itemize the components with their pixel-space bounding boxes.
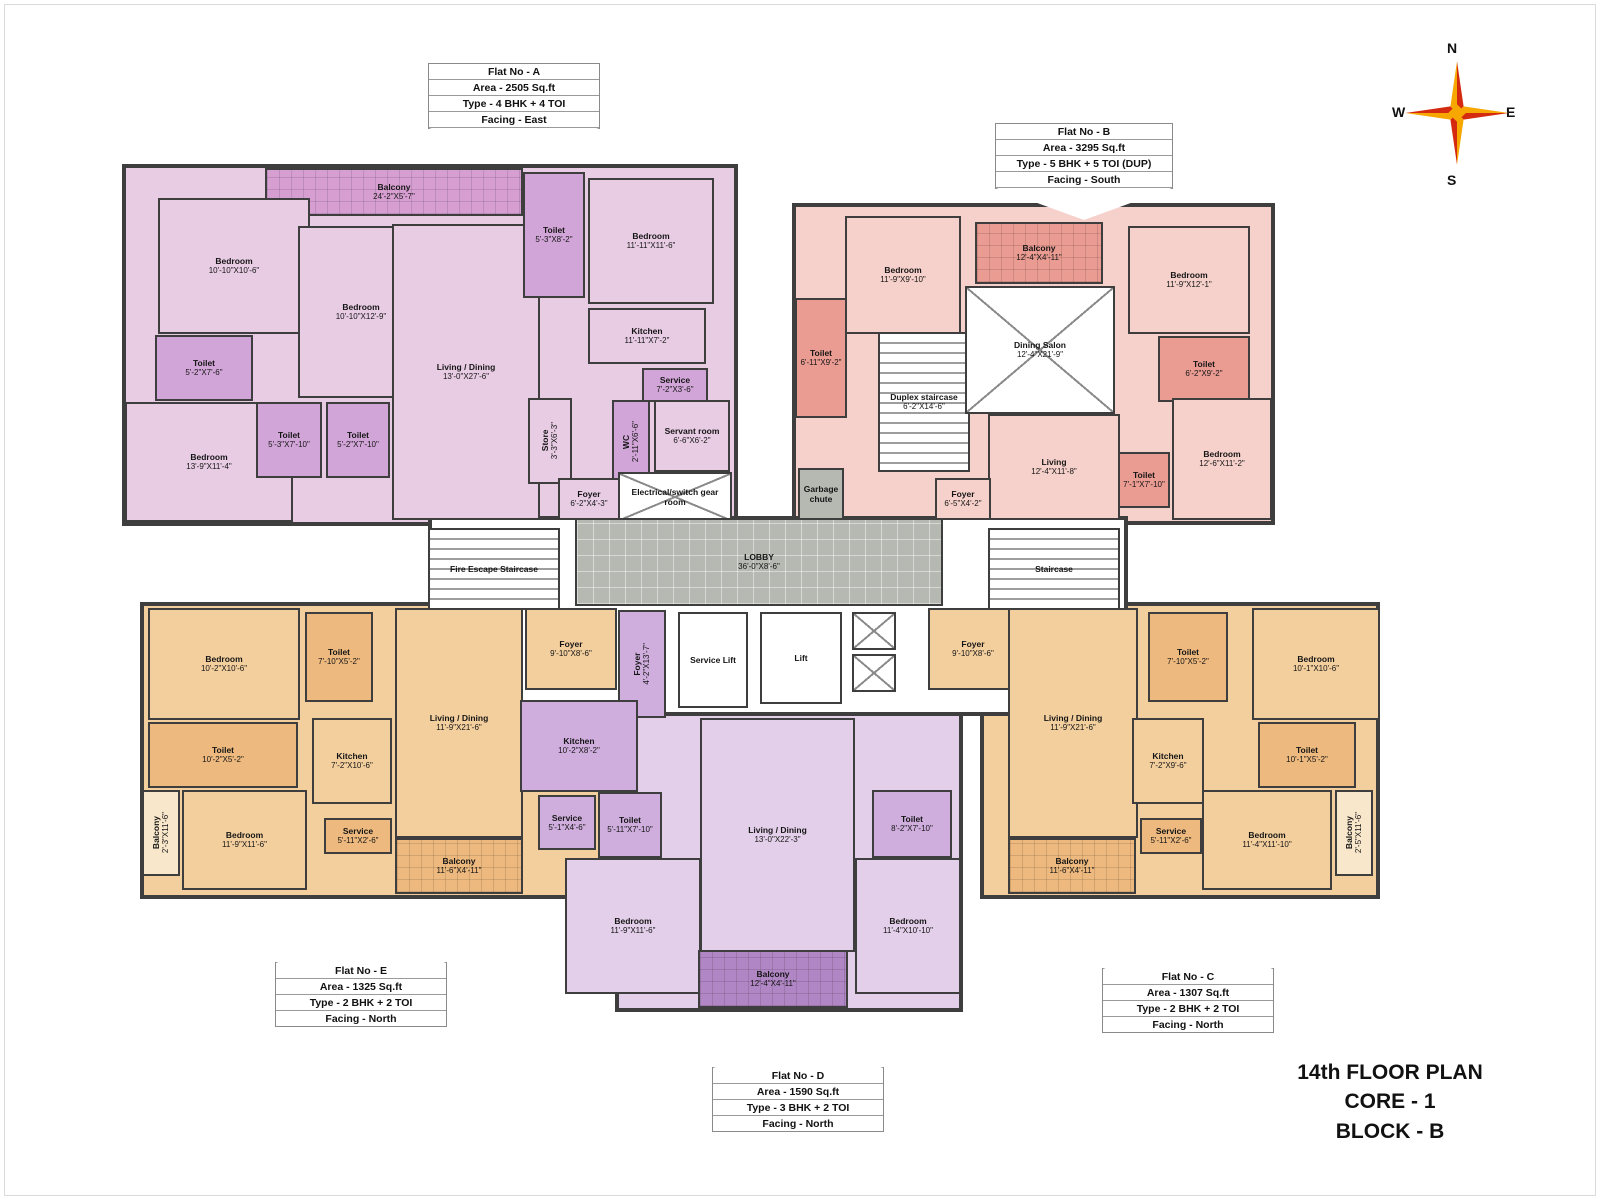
room-kitchen: Kitchen7'-2"X9'-6" (1132, 718, 1204, 804)
room-bedroom: Bedroom10'-2"X10'-6" (148, 608, 300, 720)
room-toilet: Toilet6'-11"X9'-2" (795, 298, 847, 418)
room-store: Store3'-3"X6'-3" (528, 398, 572, 484)
flat-a-facing: Facing - East (429, 112, 599, 128)
room-toilet: Toilet6'-2"X9'-2" (1158, 336, 1250, 402)
room-bedroom: Bedroom11'-9"X11'-6" (565, 858, 701, 994)
room-balcony: Balcony12'-4"X4'-11" (698, 950, 848, 1008)
flat-b-callout: Flat No - B Area - 3295 Sq.ft Type - 5 B… (995, 123, 1173, 189)
room-toilet: Toilet5'-2"X7'-10" (326, 402, 390, 478)
flat-b-type: Type - 5 BHK + 5 TOI (DUP) (996, 156, 1172, 172)
room-living: Living12'-4"X11'-8" (988, 414, 1120, 520)
flat-c-area: Area - 1307 Sq.ft (1103, 985, 1273, 1001)
room-bedroom: Bedroom11'-9"X12'-1" (1128, 226, 1250, 334)
room-foyer: Foyer6'-5"X4'-2" (935, 478, 991, 520)
room-fire-escape-staircase: Fire Escape Staircase (428, 528, 560, 610)
room-living-dining: Living / Dining13'-0"X22'-3" (700, 718, 855, 952)
room-service-lift: Service Lift (678, 612, 748, 708)
room-lobby: LOBBY36'-0"X8'-6" (575, 518, 943, 606)
room-foyer: Foyer9'-10"X8'-6" (928, 608, 1018, 690)
room-toilet: Toilet5'-11"X7'-10" (598, 792, 662, 858)
flat-b-number: Flat No - B (996, 124, 1172, 140)
room-bedroom: Bedroom11'-4"X10'-10" (855, 858, 961, 994)
title-block: 14th FLOOR PLAN CORE - 1 BLOCK - B (1270, 1058, 1510, 1146)
flat-a-callout: Flat No - A Area - 2505 Sq.ft Type - 4 B… (428, 63, 600, 129)
room-garbage-chute: Garbage chute (798, 468, 844, 520)
flat-b-area: Area - 3295 Sq.ft (996, 140, 1172, 156)
room-kitchen: Kitchen11'-11"X7'-2" (588, 308, 706, 364)
room-toilet: Toilet5'-3"X7'-10" (256, 402, 322, 478)
room-toilet: Toilet8'-2"X7'-10" (872, 790, 952, 858)
room-bedroom: Bedroom11'-9"X9'-10" (845, 216, 961, 334)
title-block-line: BLOCK - B (1270, 1117, 1510, 1146)
room-toilet: Toilet10'-2"X5'-2" (148, 722, 298, 788)
flat-d-facing: Facing - North (713, 1116, 883, 1131)
room-duplex-staircase: Duplex staircase6'-2"X14'-6" (878, 332, 970, 472)
room-bedroom: Bedroom10'-10"X10'-6" (158, 198, 310, 334)
flat-d-area: Area - 1590 Sq.ft (713, 1084, 883, 1100)
room-bedroom: Bedroom11'-11"X11'-6" (588, 178, 714, 304)
room-foyer: Foyer9'-10"X8'-6" (525, 608, 617, 690)
room-service: Service5'-11"X2'-6" (324, 818, 392, 854)
room-balcony: Balcony11'-6"X4'-11" (1008, 838, 1136, 894)
room-bedroom: Bedroom11'-9"X11'-6" (182, 790, 307, 890)
flat-c-facing: Facing - North (1103, 1017, 1273, 1032)
room-living-dining: Living / Dining11'-9"X21'-6" (395, 608, 523, 838)
room-electrical-switch-gear-room: Electrical/switch gear room (618, 472, 732, 522)
compass-south-label: S (1447, 172, 1456, 188)
flat-a-type: Type - 4 BHK + 4 TOI (429, 96, 599, 112)
flat-d-type: Type - 3 BHK + 2 TOI (713, 1100, 883, 1116)
flat-d-callout: Flat No - D Area - 1590 Sq.ft Type - 3 B… (712, 1067, 884, 1132)
compass-star-icon (1402, 58, 1512, 168)
flat-e-facing: Facing - North (276, 1011, 446, 1026)
flat-c-callout: Flat No - C Area - 1307 Sq.ft Type - 2 B… (1102, 968, 1274, 1033)
room-bedroom: Bedroom12'-6"X11'-2" (1172, 398, 1272, 520)
room-lift: Lift (760, 612, 842, 704)
room-toilet: Toilet5'-3"X8'-2" (523, 172, 585, 298)
flat-a-number: Flat No - A (429, 64, 599, 80)
room-toilet: Toilet10'-1"X5'-2" (1258, 722, 1356, 788)
room-balcony: Balcony12'-4"X4'-11" (975, 222, 1103, 284)
room-service: Service5'-11"X2'-6" (1140, 818, 1202, 854)
flat-e-area: Area - 1325 Sq.ft (276, 979, 446, 995)
compass-rose: N E S W (1392, 40, 1512, 190)
room-toilet: Toilet7'-1"X7'-10" (1118, 452, 1170, 508)
room-bedroom: Bedroom11'-4"X11'-10" (1202, 790, 1332, 890)
flat-e-type: Type - 2 BHK + 2 TOI (276, 995, 446, 1011)
room-kitchen: Kitchen10'-2"X8'-2" (520, 700, 638, 792)
flat-a-area: Area - 2505 Sq.ft (429, 80, 599, 96)
flat-b-facing: Facing - South (996, 172, 1172, 188)
shaft (852, 654, 896, 692)
room-toilet: Toilet7'-10"X5'-2" (1148, 612, 1228, 702)
room-staircase: Staircase (988, 528, 1120, 610)
flat-c-number: Flat No - C (1103, 969, 1273, 985)
room-living-dining: Living / Dining11'-9"X21'-6" (1008, 608, 1138, 838)
room-foyer: Foyer6'-2"X4'-3" (558, 478, 620, 520)
room-dining-salon: Dining Salon12'-4"X21'-9" (965, 286, 1115, 414)
flat-d-number: Flat No - D (713, 1068, 883, 1084)
title-floor: 14th FLOOR PLAN (1270, 1058, 1510, 1087)
room-servant-room: Servant room6'-6"X6'-2" (654, 400, 730, 472)
room-service: Service7'-2"X3'-6" (642, 368, 708, 402)
room-service: Service5'-1"X4'-6" (538, 795, 596, 850)
flat-e-number: Flat No - E (276, 963, 446, 979)
room-balcony: Balcony11'-6"X4'-11" (395, 838, 523, 894)
room-toilet: Toilet5'-2"X7'-6" (155, 335, 253, 401)
flat-e-callout: Flat No - E Area - 1325 Sq.ft Type - 2 B… (275, 962, 447, 1027)
room-balcony: Balcony2'-5"X11'-6" (1335, 790, 1373, 876)
room-kitchen: Kitchen7'-2"X10'-6" (312, 718, 392, 804)
flat-c-type: Type - 2 BHK + 2 TOI (1103, 1001, 1273, 1017)
room-balcony: Balcony2'-3"X11'-6" (142, 790, 180, 876)
shaft (852, 612, 896, 650)
room-toilet: Toilet7'-10"X5'-2" (305, 612, 373, 702)
compass-north-label: N (1447, 40, 1457, 56)
title-core: CORE - 1 (1270, 1087, 1510, 1116)
room-bedroom: Bedroom10'-1"X10'-6" (1252, 608, 1380, 720)
floorplan-canvas: Balcony24'-2"X5'-7"Bedroom10'-10"X10'-6"… (0, 0, 1600, 1200)
room-living-dining: Living / Dining13'-0"X27'-6" (392, 224, 540, 520)
